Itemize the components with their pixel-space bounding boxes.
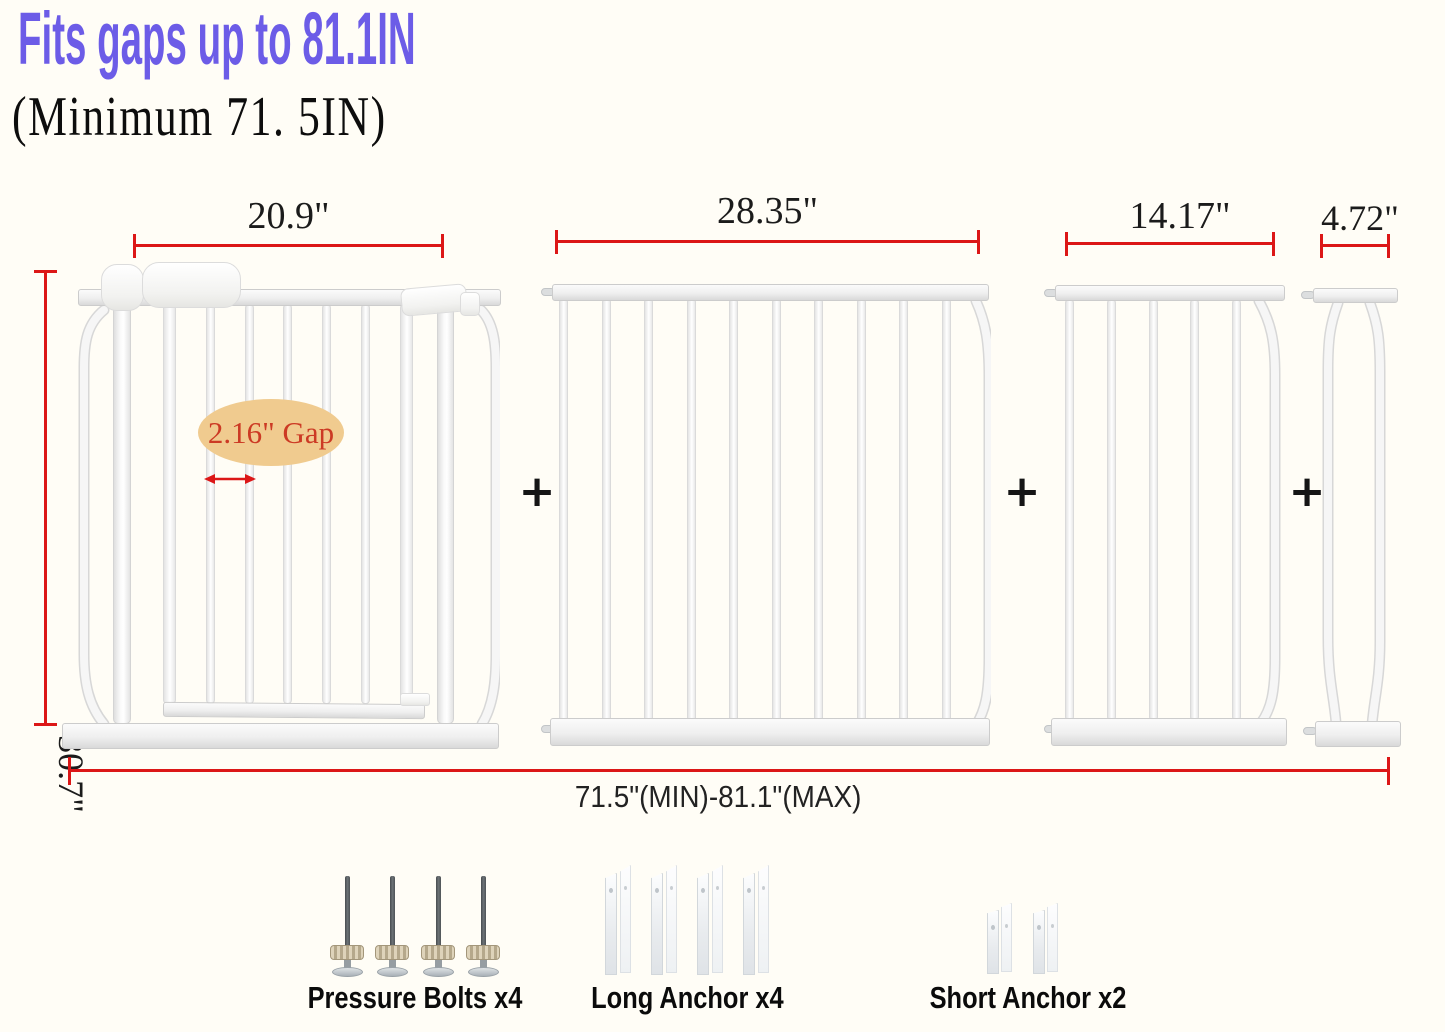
vertical-bar	[1149, 299, 1158, 721]
gate4-bottom-rail	[1315, 721, 1401, 747]
vertical-bar	[857, 298, 866, 722]
vertical-bar	[772, 298, 781, 722]
page-title: Fits gaps up to 81.1IN	[18, 2, 416, 76]
total-width-dimension-line	[68, 769, 1390, 772]
height-dimension-line: 30.7"	[44, 270, 47, 726]
gate4-curved-bars	[1303, 285, 1403, 753]
vertical-bar	[361, 304, 370, 704]
gate1-door-bottom-rail	[163, 702, 425, 719]
gate1-bottom-rail	[62, 723, 499, 749]
product-dimension-diagram: Fits gaps up to 81.1IN (Minimum 71. 5IN)…	[0, 0, 1445, 1032]
gate-panel-with-door	[62, 262, 500, 759]
gate4-top-rail	[1313, 288, 1398, 303]
panel4-dimension-line	[1320, 244, 1390, 247]
vertical-bar	[729, 298, 738, 722]
vertical-bar	[1190, 299, 1199, 721]
gate1-door-bottom-latch	[400, 693, 430, 706]
vertical-bar	[644, 298, 653, 722]
long-anchor	[650, 864, 680, 978]
vertical-bar	[687, 298, 696, 722]
long-anchors-group	[604, 864, 772, 978]
pressure-bolt	[375, 876, 411, 978]
pressure-bolt	[421, 876, 457, 978]
extension-panel-medium	[1048, 283, 1290, 748]
vertical-bar	[400, 304, 413, 704]
vertical-bar	[1107, 299, 1116, 721]
panel1-dimension-line	[133, 244, 444, 247]
gate3-bottom-rail	[1051, 718, 1287, 746]
panel3-width-label: 14.17"	[1075, 194, 1285, 238]
vertical-bar	[814, 298, 823, 722]
short-anchor-label: Short Anchor x2	[868, 980, 1188, 1016]
vertical-bar	[163, 304, 176, 704]
gate2-bottom-rail	[550, 718, 990, 746]
vertical-bar	[559, 298, 568, 722]
short-anchor	[1032, 902, 1060, 976]
vertical-bar	[1065, 299, 1074, 721]
gate2-top-rail	[552, 284, 989, 301]
gate1-latch-handle	[142, 262, 241, 308]
vertical-bar	[1232, 299, 1241, 721]
gate1-left-post	[113, 272, 131, 724]
gate1-hinge-bracket	[460, 292, 480, 316]
vertical-bar	[942, 298, 951, 722]
vertical-bar	[206, 304, 215, 704]
gate1-latch-cap	[101, 264, 144, 311]
gate1-hinge	[400, 283, 468, 317]
gate3-top-rail	[1055, 285, 1285, 301]
panel2-dimension-line	[555, 240, 980, 243]
long-anchor	[604, 864, 634, 978]
bar-gap-badge: 2.16" Gap	[198, 399, 344, 466]
panel3-dimension-line	[1065, 242, 1275, 245]
vertical-bar	[245, 304, 254, 704]
vertical-bar	[283, 304, 292, 704]
long-anchor	[696, 864, 726, 978]
gate2-bars	[559, 298, 951, 722]
gate1-door-bars	[163, 304, 413, 704]
vertical-bar	[602, 298, 611, 722]
extension-panel-large	[548, 281, 991, 752]
vertical-bar	[322, 304, 331, 704]
long-anchor-label: Long Anchor x4	[527, 980, 847, 1016]
page-subtitle: (Minimum 71. 5IN)	[12, 88, 387, 147]
panel1-width-label: 20.9"	[133, 194, 444, 238]
panel2-width-label: 28.35"	[555, 189, 980, 233]
vertical-bar	[899, 298, 908, 722]
pressure-bolt	[330, 876, 366, 978]
panel4-width-label: 4.72"	[1300, 197, 1420, 239]
total-width-label: 71.5"(MIN)-81.1"(MAX)	[368, 779, 1068, 815]
pressure-bolts-group	[330, 876, 502, 978]
long-anchor	[742, 864, 772, 978]
gap-width-arrow-icon	[203, 471, 257, 487]
pressure-bolt	[466, 876, 502, 978]
gate1-right-post	[437, 296, 454, 724]
short-anchors-group	[986, 902, 1060, 976]
plus-sign-2: +	[992, 470, 1052, 514]
short-anchor	[986, 902, 1014, 976]
extension-panel-small	[1303, 285, 1403, 753]
gate3-bars	[1065, 299, 1241, 721]
